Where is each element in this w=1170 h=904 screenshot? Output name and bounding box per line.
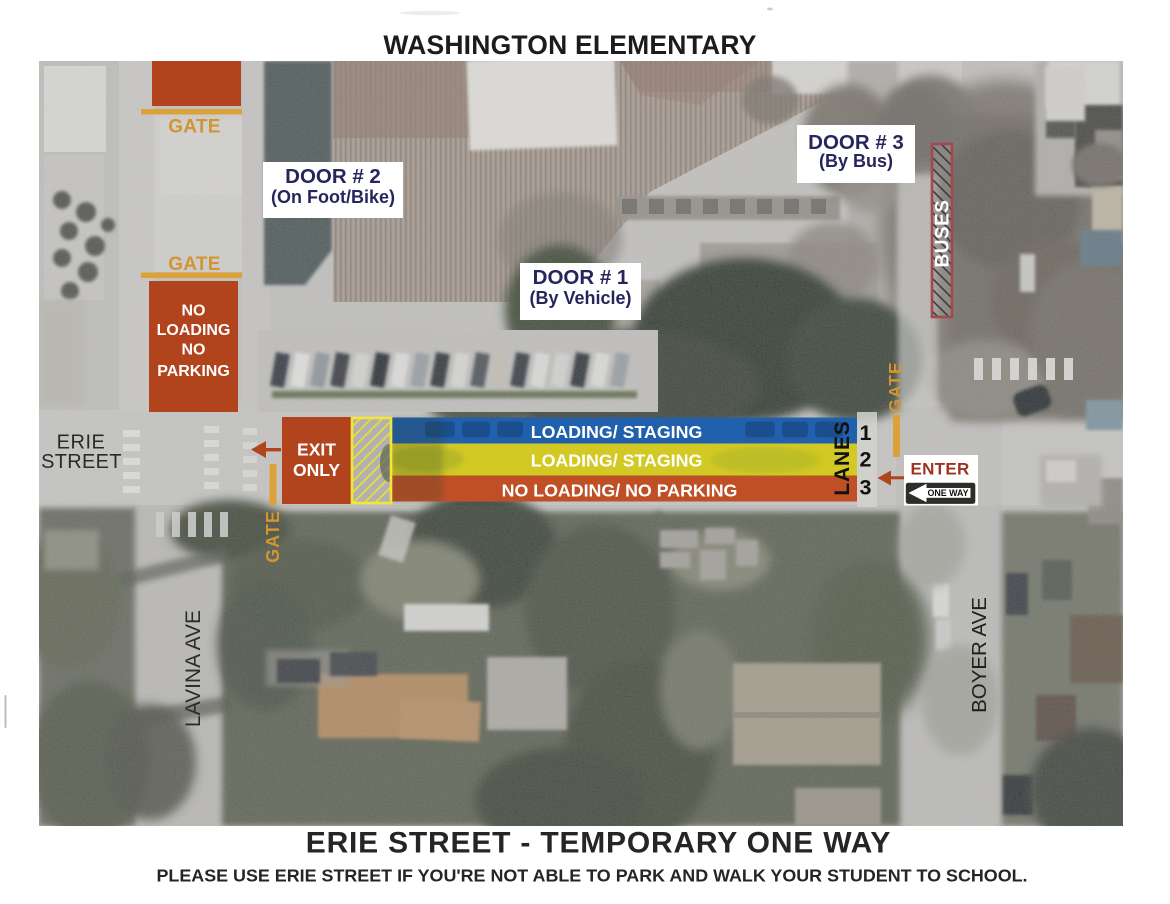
svg-text:LANES: LANES	[831, 420, 854, 495]
svg-text:STREET: STREET	[41, 451, 122, 473]
svg-text:(By Vehicle): (By Vehicle)	[529, 288, 631, 308]
svg-text:1: 1	[860, 421, 872, 445]
svg-text:PARKING: PARKING	[157, 363, 230, 380]
svg-text:GATE: GATE	[168, 117, 221, 138]
svg-text:LOADING/ STAGING: LOADING/ STAGING	[531, 422, 703, 442]
svg-text:NO: NO	[182, 342, 206, 359]
svg-text:NO: NO	[182, 303, 206, 320]
svg-text:2: 2	[860, 448, 872, 472]
svg-text:BUSES: BUSES	[933, 200, 954, 268]
svg-text:GATE: GATE	[168, 254, 221, 275]
svg-text:ONLY: ONLY	[293, 460, 340, 480]
svg-text:LOADING: LOADING	[157, 322, 231, 339]
svg-text:EXIT: EXIT	[297, 440, 336, 460]
svg-text:ONE WAY: ONE WAY	[927, 488, 968, 498]
svg-text:GATE: GATE	[263, 510, 283, 563]
svg-text:ENTER: ENTER	[910, 459, 969, 478]
svg-text:WASHINGTON ELEMENTARY: WASHINGTON ELEMENTARY	[383, 30, 756, 60]
svg-text:(By Bus): (By Bus)	[819, 151, 893, 171]
svg-text:NO LOADING/ NO PARKING: NO LOADING/ NO PARKING	[502, 481, 738, 501]
svg-text:BOYER AVE: BOYER AVE	[968, 597, 991, 713]
svg-text:LAVINA AVE: LAVINA AVE	[182, 610, 205, 727]
svg-text:ERIE STREET - TEMPORARY ONE WA: ERIE STREET - TEMPORARY ONE WAY	[306, 827, 891, 860]
svg-text:LOADING/ STAGING: LOADING/ STAGING	[531, 451, 703, 471]
svg-text:3: 3	[860, 476, 872, 500]
svg-text:PLEASE USE ERIE STREET IF YOU': PLEASE USE ERIE STREET IF YOU'RE NOT ABL…	[156, 866, 1027, 886]
svg-text:DOOR # 1: DOOR # 1	[533, 266, 629, 289]
svg-text:GATE: GATE	[885, 361, 905, 412]
svg-text:(On Foot/Bike): (On Foot/Bike)	[271, 187, 395, 207]
svg-text:DOOR # 2: DOOR # 2	[285, 165, 381, 188]
